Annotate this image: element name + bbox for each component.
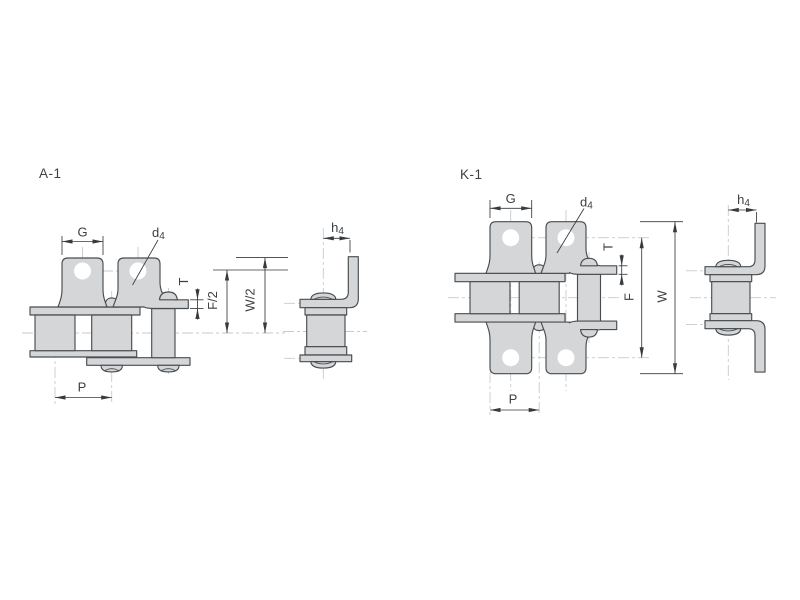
dimension-t: T [176,277,204,319]
technical-drawing-canvas: A-1 [0,0,800,600]
dim-w-half-label: W/2 [243,288,258,311]
a1-front-view: G d4 T [22,225,288,405]
attachment-hole [502,349,519,366]
dimension-f: F [622,238,644,358]
dimension-w-half: W/2 [236,258,288,333]
pin [152,309,175,358]
pin-rivet-end [311,362,336,368]
pin [578,274,601,321]
link-plate-edge [710,314,752,321]
a1-label: A-1 [39,166,62,181]
dim-f-label: F [622,293,637,301]
a1-drawing: A-1 [22,166,367,404]
dimension-w: W [640,222,683,374]
dim-g-label: G [77,225,87,240]
k1-front-view: G d4 T F [448,191,683,415]
roller [92,315,132,351]
k1-label: K-1 [460,167,483,182]
dim-d4-label: d4 [152,225,165,242]
a1-side-dimensions: h4 [323,220,350,253]
a1-side-view: h4 [283,220,367,382]
link-plate-edge [305,308,347,315]
pin-head [581,258,598,266]
attachment-hole [502,229,519,246]
link-plate-bar-top [30,307,140,315]
dim-p-label: P [78,380,87,395]
dim-t-label: T [601,243,616,251]
attachment-hole [558,349,575,366]
pin-head [311,293,336,299]
pin-rivet-end [716,329,741,335]
dim-h4-label: h4 [331,220,344,237]
bent-attachment-plate [541,321,617,374]
roller [35,315,75,351]
pin-head [716,260,741,266]
dim-g-label: G [506,191,516,206]
dimension-t: T [601,243,628,286]
dimension-h4: h4 [728,192,756,223]
link-plate-edge [710,275,752,282]
roller [307,315,345,347]
k1-side-view: h4 [686,192,776,380]
dimension-p: P [55,380,112,400]
roller [470,282,510,314]
link-plate-edge [305,347,347,355]
a1-front-parts [30,258,190,372]
dimension-h4: h4 [323,220,350,253]
dim-d4-label: d4 [580,195,593,212]
roller [519,282,559,314]
attachment-hole [74,263,91,280]
outer-link-plate [87,358,190,366]
k1-drawing: K-1 [448,167,776,415]
dim-w-label: W [655,290,670,303]
pin-head [160,292,178,300]
a1-side-parts [300,257,358,368]
pin-head [581,330,598,338]
dimension-p: P [490,392,539,413]
dim-f-half-label: F/2 [205,291,220,310]
link-plate-bar-top [455,273,565,281]
k1-side-dimensions: h4 [728,192,756,223]
bent-attachment-plate-edge [300,257,358,308]
dim-p-label: P [509,392,518,407]
link-plate-edge [300,355,352,362]
roller [712,282,750,314]
k1-front-parts [455,222,617,374]
link-plate-bar-bottom [455,314,565,322]
dim-h4-label: h4 [737,192,750,209]
dim-t-label: T [176,277,191,285]
technical-drawing-page: A-1 [0,0,800,600]
link-plate-bar-bottom [30,351,137,357]
